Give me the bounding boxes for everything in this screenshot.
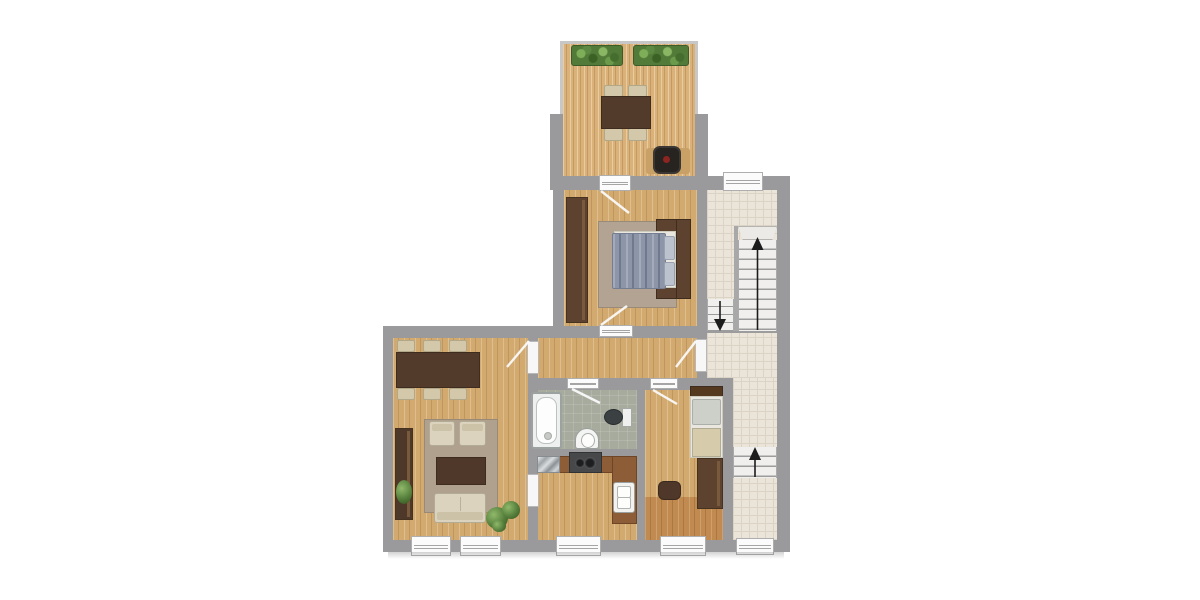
living-room-kitchen-door <box>527 474 539 507</box>
wall-bath-smallroom <box>637 378 645 540</box>
dining-chair-4 <box>397 388 415 400</box>
hallway-floor <box>538 338 697 378</box>
terrace-chair-4 <box>628 128 647 141</box>
single-bed-blanket <box>692 428 721 457</box>
bathtub <box>531 392 562 449</box>
small-bedroom-door <box>650 378 678 389</box>
wall-smallroom-right <box>723 378 733 540</box>
washbasin <box>575 428 599 449</box>
kitchen-sink <box>613 482 635 513</box>
stair-winder-step <box>738 226 777 240</box>
dining-chair-5 <box>423 388 441 400</box>
stool <box>658 481 681 500</box>
stair-landing-edge <box>707 331 777 333</box>
sofa <box>434 493 486 523</box>
apartment-entrance-door <box>695 339 707 372</box>
dining-table <box>396 352 480 388</box>
wall-living-top <box>383 326 553 338</box>
stair-flight-down <box>707 299 734 332</box>
dining-chair-6 <box>449 388 467 400</box>
terrace-dining-table <box>601 96 651 129</box>
wall-outer-right <box>777 176 790 552</box>
dining-chair-2 <box>423 340 441 352</box>
bedroom-door <box>599 325 633 337</box>
bbq-grill <box>653 146 681 174</box>
floor-plant-b <box>502 501 520 519</box>
toilet-bowl <box>604 409 623 425</box>
sideboard-plant <box>396 480 412 504</box>
dining-chair-1 <box>397 340 415 352</box>
bedroom-wardrobe <box>566 197 588 323</box>
planter-box-2 <box>633 45 689 66</box>
window-stairwell-top <box>723 172 763 191</box>
dining-chair-3 <box>449 340 467 352</box>
small-room-wardrobe <box>697 458 723 509</box>
bed-duvet <box>612 233 666 289</box>
plan-drop-shadow <box>388 552 784 559</box>
terrace-door <box>599 175 631 191</box>
bed-pillow-2 <box>664 262 675 286</box>
bed-headboard <box>676 219 691 299</box>
sideboard <box>395 428 413 520</box>
living-room-hall-door <box>527 341 539 374</box>
stairwell-floor-patch <box>733 378 777 390</box>
stainless-appliance <box>537 456 560 473</box>
stove <box>569 452 602 473</box>
bathroom-door <box>567 378 599 389</box>
terrace-chair-3 <box>604 128 623 141</box>
stair-flight-up <box>738 240 777 332</box>
toilet-tank <box>622 408 632 427</box>
bed-pillow-1 <box>664 236 675 260</box>
stair-flight-bottom <box>733 447 777 478</box>
floor-plan-canvas <box>0 0 1200 600</box>
planter-box-1 <box>571 45 623 66</box>
terrace-railing-right <box>695 41 698 118</box>
armchair-1 <box>429 421 455 446</box>
floor-plant-c <box>492 520 506 532</box>
wall-bedroom-left <box>553 190 564 338</box>
coffee-table <box>436 457 486 485</box>
single-bed-pillow <box>692 399 721 425</box>
armchair-2 <box>459 421 486 446</box>
wall-living-left <box>383 326 393 552</box>
terrace-railing-top <box>560 41 698 44</box>
terrace-railing-left <box>560 41 563 118</box>
